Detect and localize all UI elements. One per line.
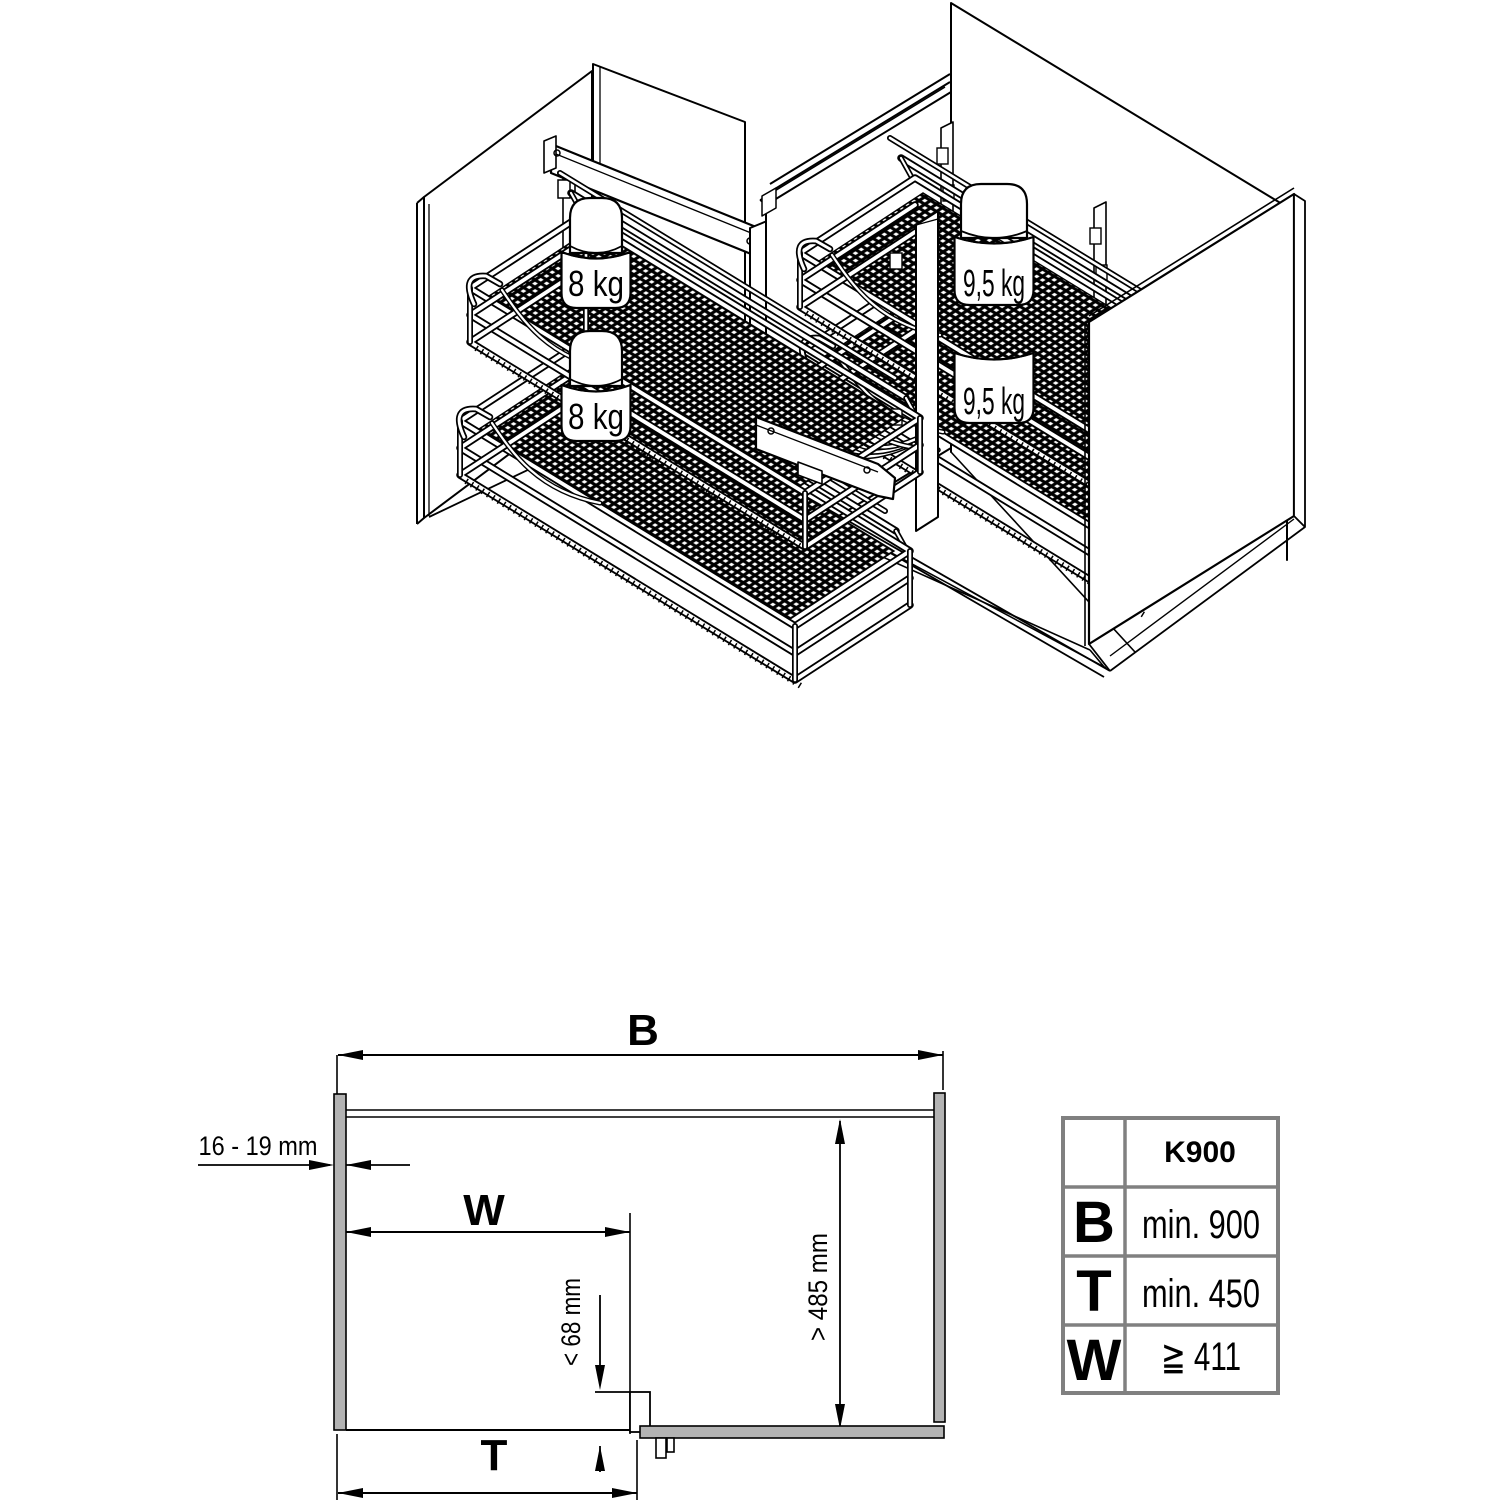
svg-text:W: W [1067,1328,1122,1393]
svg-text:B: B [627,1006,659,1055]
svg-text:9,5 kg: 9,5 kg [963,381,1025,423]
svg-text:B: B [1073,1190,1115,1255]
svg-text:min. 900: min. 900 [1142,1203,1260,1247]
svg-text:8 kg: 8 kg [568,263,624,304]
svg-text:9,5 kg: 9,5 kg [963,263,1025,305]
svg-text:T: T [1076,1259,1111,1324]
svg-text:K900: K900 [1164,1136,1236,1169]
svg-text:W: W [463,1186,505,1235]
svg-text:16 - 19 mm: 16 - 19 mm [199,1131,318,1161]
svg-text:min. 450: min. 450 [1142,1272,1260,1316]
svg-text:< 68 mm: < 68 mm [556,1278,586,1366]
svg-text:8 kg: 8 kg [568,396,624,437]
svg-text:T: T [481,1431,508,1480]
svg-text:≧ 411: ≧ 411 [1161,1335,1241,1379]
svg-text:> 485 mm: > 485 mm [803,1233,833,1341]
